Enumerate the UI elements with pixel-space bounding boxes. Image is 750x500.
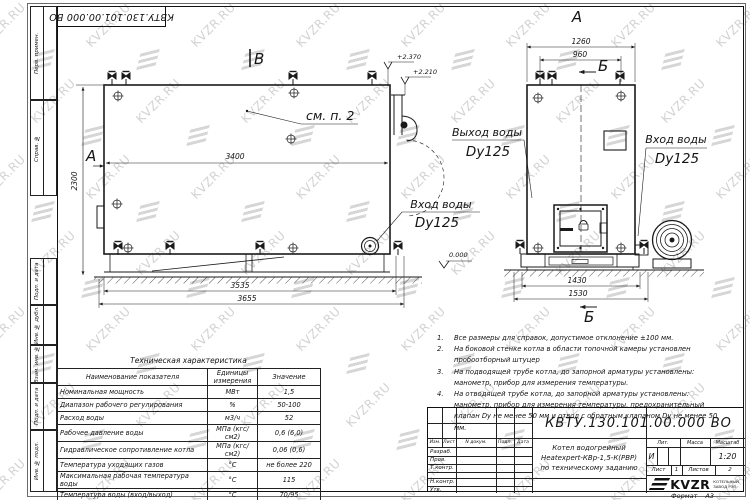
col-doc: N докум. — [456, 438, 496, 447]
cell-units: °С — [208, 472, 258, 489]
cell-value: не более 220 — [258, 459, 321, 472]
valve-icon — [289, 72, 297, 86]
cell-name: Температура воды (вход/выход) — [58, 489, 208, 500]
row-tkontr: Т.контр. — [428, 464, 458, 472]
cell-units: м3/ч — [208, 412, 258, 425]
lifting-lug-icon — [112, 199, 123, 210]
product-line3: по техническому заданию — [540, 463, 637, 473]
cell-value: 0,06 (0,6) — [258, 442, 321, 459]
outlet-label: Выход воды — [452, 126, 522, 139]
row-razrab: Разраб. — [428, 447, 458, 456]
inlet-size-side: Dy125 — [415, 215, 459, 231]
dim-text-1260: 1260 — [571, 37, 590, 46]
cell-value: 70/95 — [258, 489, 321, 500]
spec-table: Наименование показателя Единицы измерени… — [57, 368, 321, 500]
fan-base — [653, 259, 691, 268]
table-header-row: Наименование показателя Единицы измерени… — [58, 369, 321, 386]
cell-value: 50-100 — [258, 399, 321, 412]
lifting-lug-icon — [289, 88, 300, 99]
ground-hatch-side — [94, 278, 422, 284]
inlet-label-front: Вход воды — [645, 133, 707, 146]
col-header-value: Значение — [258, 369, 321, 386]
lifting-lug-icon — [616, 91, 627, 102]
scale-label: Масштаб — [710, 438, 745, 447]
sheets-value: 2 — [715, 465, 745, 475]
zero-level-mark — [439, 261, 449, 268]
sheet-value: 1 — [671, 465, 682, 475]
cell-value: 1,5 — [258, 386, 321, 399]
col-podp: Подп. — [496, 438, 514, 447]
section-letter-b-top: Б — [598, 57, 608, 75]
format-value: А3 — [705, 492, 714, 500]
table-row: Гидравлическое сопротивление котлаМПа (к… — [58, 442, 321, 459]
dim-text-3400: 3400 — [225, 152, 244, 161]
side-view — [76, 49, 480, 308]
note-text: На подводящей трубе котла, до запорной а… — [454, 367, 722, 389]
door-latch-knob — [579, 224, 588, 230]
side-wall-fitting — [97, 206, 104, 228]
col-izm: Изм. — [428, 438, 442, 447]
lit-value: И — [646, 447, 657, 465]
table-row: Расход водым3/ч52 — [58, 412, 321, 425]
cell-units: °С — [208, 489, 258, 500]
col-header-units: Единицы измерения — [208, 369, 258, 386]
valve-icon — [394, 242, 402, 256]
product-title-cell: Котел водогрейный Heatexpert-КВр-1,5-К(Р… — [532, 438, 646, 478]
note-number: 3. — [437, 367, 454, 389]
table-row: Температура воды (вход/выход)°С70/95 — [58, 489, 321, 500]
format-label: ФорматА3 — [635, 492, 750, 500]
format-word: Формат — [671, 492, 697, 500]
note-number: 2. — [437, 344, 454, 366]
section-letter-b-bottom: Б — [584, 308, 594, 326]
inspection-hatch — [604, 131, 626, 150]
note-item: 2.На боковой стенке котла в области топо… — [437, 344, 722, 366]
dim-text-3535: 3535 — [230, 281, 249, 290]
table-row: Рабочее давление водыМПа (кгс/см2)0,6 (6… — [58, 425, 321, 442]
lifting-lug-icon — [616, 243, 627, 254]
valve-icon — [114, 242, 122, 256]
product-line2: Heatexpert-КВр-1,5-К(РВР) — [541, 453, 637, 463]
title-block: КВТУ.130.101.00.000 ВО Изм. Лист N докум… — [427, 407, 744, 492]
spec-table-title: Техническая характеристика — [57, 356, 320, 368]
logo-sub2: ЗАВОД РЭП — [713, 484, 739, 489]
cell-name: Гидравлическое сопротивление котла — [58, 442, 208, 459]
col-data: Дата — [514, 438, 532, 447]
col-header-name: Наименование показателя — [58, 369, 208, 386]
inlet-leader-front — [638, 148, 646, 236]
front-view — [452, 43, 707, 307]
valve-icon — [548, 72, 556, 86]
spec-table-block: Техническая характеристика Наименование … — [57, 356, 320, 500]
row-nkontr: Н.контр. — [428, 478, 458, 486]
lifting-lug-icon — [533, 93, 544, 104]
mass-label: Масса — [680, 438, 710, 447]
view-letter-a-front: А — [571, 8, 582, 26]
cell-units: МПа (кгс/см2) — [208, 442, 258, 459]
table-row: Максимальная рабочая температура воды°С1… — [58, 472, 321, 489]
sheets-label: Листов — [682, 465, 715, 475]
logo-text: KVZR — [670, 477, 710, 492]
valve-icon — [368, 72, 376, 86]
lit-label: Лит. — [646, 438, 680, 447]
table-row: Номинальная мощностьМВт1,5 — [58, 386, 321, 399]
row-prov: Пров. — [428, 456, 458, 464]
flue-elbow — [402, 116, 417, 141]
dim-text-2300: 2300 — [70, 171, 79, 190]
note-item: 1.Все размеры для справок, допустимое от… — [437, 333, 722, 344]
elevation-2210: +2.210 — [413, 68, 437, 76]
valve-icon — [640, 241, 648, 255]
cell-value: 52 — [258, 412, 321, 425]
cell-name: Температура уходящих газов — [58, 459, 208, 472]
designation-cell: КВТУ.130.101.00.000 ВО — [532, 408, 745, 438]
valve-icon — [256, 242, 264, 256]
cell-name: Диапазон рабочего регулирования — [58, 399, 208, 412]
cell-units: °С — [208, 459, 258, 472]
inlet-label-side: Вход воды — [410, 198, 472, 211]
cell-name: Номинальная мощность — [58, 386, 208, 399]
cell-value: 0,6 (6,0) — [258, 425, 321, 442]
note-number: 1. — [437, 333, 454, 344]
view-letter-a: А — [85, 147, 96, 165]
outlet-leader — [524, 140, 532, 198]
lifting-lug-icon — [286, 134, 297, 145]
cell-value: 115 — [258, 472, 321, 489]
product-line1: Котел водогрейный — [552, 443, 626, 453]
dim-text-1430: 1430 — [567, 276, 586, 285]
cell-units: МВт — [208, 386, 258, 399]
valve-icon — [616, 72, 624, 86]
table-row: Диапазон рабочего регулирования%50-100 — [58, 399, 321, 412]
door-handle — [560, 228, 573, 231]
outlet-size: Dy125 — [466, 144, 510, 160]
skid-brace — [152, 257, 284, 271]
dim-text-960: 960 — [573, 50, 588, 59]
lifting-lug-icon — [288, 243, 299, 254]
elevation-0000: 0.000 — [449, 251, 468, 259]
lifting-lug-icon — [113, 91, 124, 102]
dim-text-3655: 3655 — [237, 294, 256, 303]
valve-icon — [108, 72, 116, 86]
table-row: Температура уходящих газов°Сне более 220 — [58, 459, 321, 472]
dim-text-1530: 1530 — [568, 289, 587, 298]
lifting-lug-icon — [123, 243, 134, 254]
note-text: На боковой стенке котла в области топочн… — [454, 344, 722, 366]
valve-icon — [166, 242, 174, 256]
row-utv: Утв. — [428, 486, 458, 493]
note-item: 3.На подводящей трубе котла, до запорной… — [437, 367, 722, 389]
kvzr-logo-icon — [649, 478, 670, 490]
scale-value: 1:20 — [710, 447, 745, 465]
cell-name: Расход воды — [58, 412, 208, 425]
lifting-lug-icon — [533, 243, 544, 254]
see-note-text: см. п. 2 — [306, 108, 354, 123]
logo-cell: KVZR КОТЕЛЬНЫЙ ЗАВОД РЭП — [646, 475, 745, 493]
cell-units: МПа (кгс/см2) — [208, 425, 258, 442]
cell-name: Рабочее давление воды — [58, 425, 208, 442]
inlet-size-front: Dy125 — [655, 151, 699, 167]
drawing-sheet: KVZR.RUKVZR.RUKVZR.RUKVZR.RUKVZR.RUKVZR.… — [0, 0, 750, 500]
note-text: Все размеры для справок, допустимое откл… — [454, 333, 722, 344]
section-letter-b: В — [254, 50, 264, 68]
elevation-2370: +2.370 — [397, 53, 421, 61]
cell-units: % — [208, 399, 258, 412]
cell-name: Максимальная рабочая температура воды — [58, 472, 208, 489]
valve-icon — [516, 241, 524, 255]
sheet-label: Лист — [646, 465, 671, 475]
col-list: Лист — [442, 438, 456, 447]
ground-hatch-front — [504, 271, 704, 277]
valve-icon — [122, 72, 130, 86]
